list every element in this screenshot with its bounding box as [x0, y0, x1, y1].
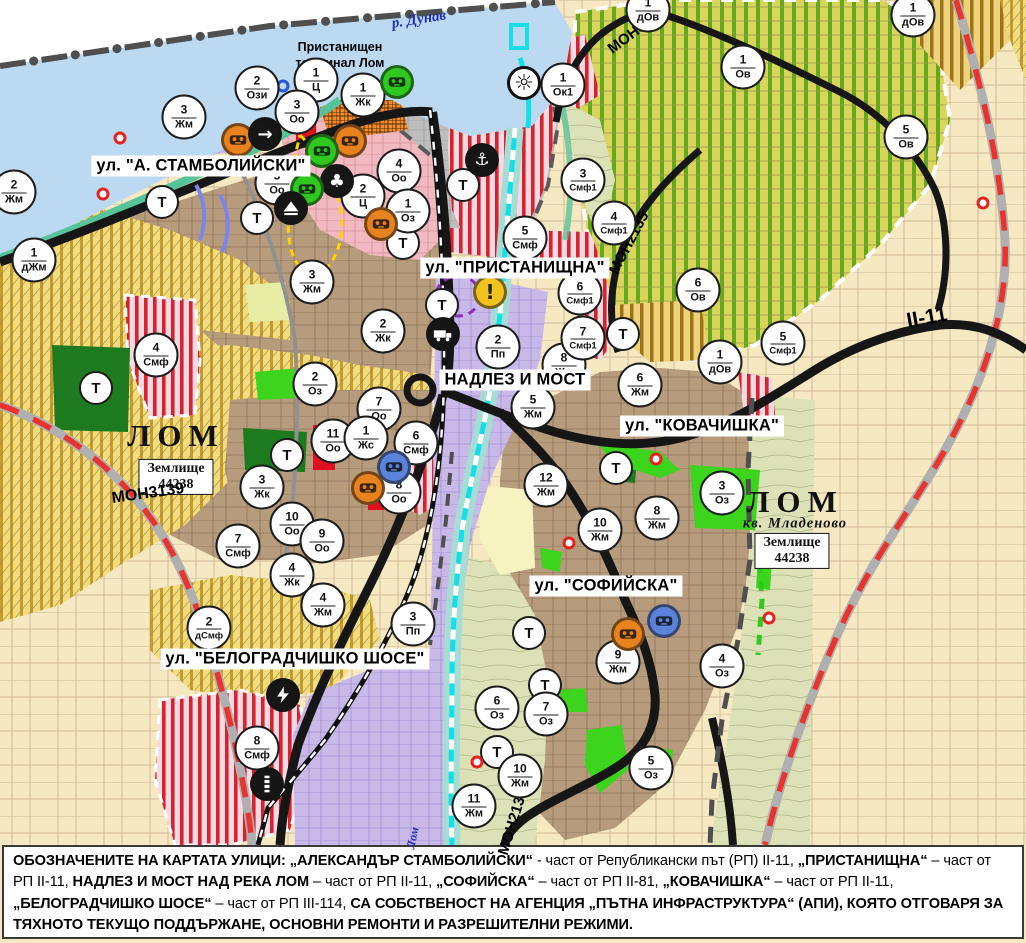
red-zone	[368, 492, 384, 510]
map-base	[0, 0, 1026, 845]
green-zone	[255, 368, 300, 400]
green-zone	[560, 688, 588, 712]
green-zone	[640, 747, 673, 783]
caption-segment: ОБОЗНАЧЕНИТЕ НА КАРТАТА УЛИЦИ: „АЛЕКСАНД…	[13, 853, 533, 869]
caption-segment: – част от РП III-114,	[211, 896, 350, 912]
caption-segment: – част от РП II-11,	[309, 874, 436, 890]
caption-segment: „КОВАЧИШКА“	[663, 874, 771, 890]
park-zone	[52, 345, 130, 432]
caption-segment: НАДЛЕЗ И МОСТ НАД РЕКА ЛОМ	[73, 874, 310, 890]
map-canvas	[0, 0, 1026, 845]
caption-segment: - част от Републикански път (РП) II-11,	[533, 853, 798, 869]
map-caption: ОБОЗНАЧЕНИТЕ НА КАРТАТА УЛИЦИ: „АЛЕКСАНД…	[2, 845, 1024, 939]
caption-segment: „ПРИСТАНИЩНА“	[798, 853, 928, 869]
caption-segment: „БЕЛОГРАДЧИШКО ШОСЕ“	[13, 896, 211, 912]
caption-segment: – част от РП II-81,	[535, 874, 663, 890]
caption-segment: – част от РП II-11,	[770, 874, 893, 890]
zoning-map-screenshot: Пристанищен терминал Лом р. Дунав Лом ЛО…	[0, 0, 1026, 943]
red-zone	[352, 198, 366, 216]
caption-segment: „СОФИЙСКА“	[436, 874, 535, 890]
red-zone	[313, 425, 335, 470]
green-zone	[478, 690, 510, 718]
